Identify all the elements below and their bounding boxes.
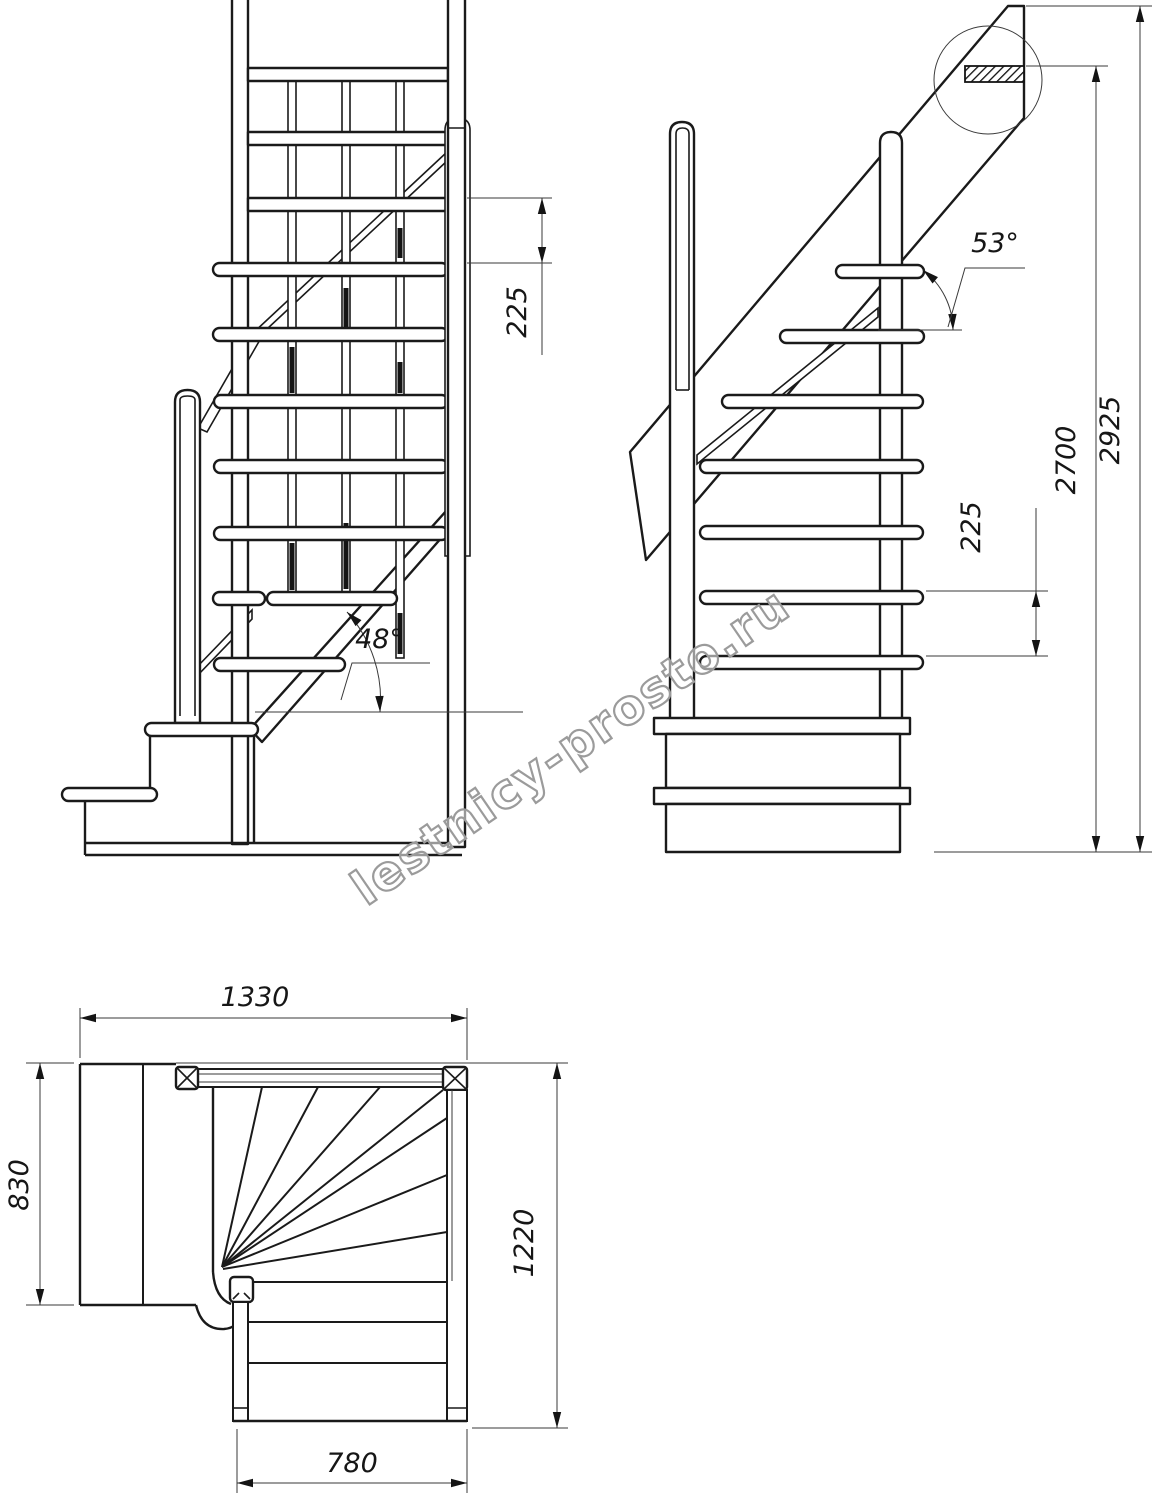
front-elevation-view: 48° 225 — [62, 0, 552, 855]
plan-landing-label: 830 — [4, 1159, 35, 1211]
side-angle-label: 53° — [971, 228, 1019, 259]
side-elevation-view: 53° 225 2700 — [630, 6, 1152, 852]
side-floor-height-label: 2700 — [1051, 426, 1082, 495]
side-floor-hatch — [965, 66, 1024, 82]
plan-view: 1330 830 1220 — [4, 982, 568, 1493]
plan-width-label: 1330 — [221, 982, 290, 1013]
front-step-spacing-label: 225 — [502, 286, 533, 338]
plan-flight-width-label: 780 — [326, 1448, 378, 1479]
plan-newel-post-left — [176, 1067, 198, 1089]
staircase-blueprint: 48° 225 — [0, 0, 1158, 1500]
side-total-height-dimension: 2925 — [1026, 6, 1152, 852]
plan-newel-post-right — [443, 1067, 467, 1090]
front-step-dimension: 225 — [467, 198, 552, 355]
side-base-box — [654, 718, 910, 852]
side-step-dimension: 225 — [926, 501, 1048, 656]
side-step-spacing-label: 225 — [956, 501, 987, 553]
plan-winder-treads — [222, 1087, 447, 1269]
plan-length-label: 1220 — [509, 1209, 540, 1278]
front-newel-post — [175, 390, 200, 723]
plan-landing — [80, 1064, 240, 1329]
front-handrail-winder — [198, 334, 261, 432]
front-left-post — [232, 0, 248, 844]
plan-bottom-flight — [233, 1282, 467, 1421]
front-angle-label: 48° — [355, 624, 403, 655]
side-total-height-label: 2925 — [1095, 396, 1126, 465]
plan-flight-width-dimension: 780 — [237, 1429, 467, 1493]
side-center-post — [880, 132, 902, 722]
plan-right-stringer — [447, 1090, 467, 1421]
front-right-board — [448, 0, 465, 847]
plan-top-stringer — [198, 1069, 443, 1087]
plan-length-dimension: 1220 — [470, 1063, 568, 1428]
plan-width-dimension: 1330 — [80, 982, 467, 1060]
plan-landing-dimension: 830 — [4, 1063, 74, 1305]
blueprint-page: 48° 225 — [0, 0, 1158, 1500]
plan-winder-newel — [230, 1277, 253, 1302]
